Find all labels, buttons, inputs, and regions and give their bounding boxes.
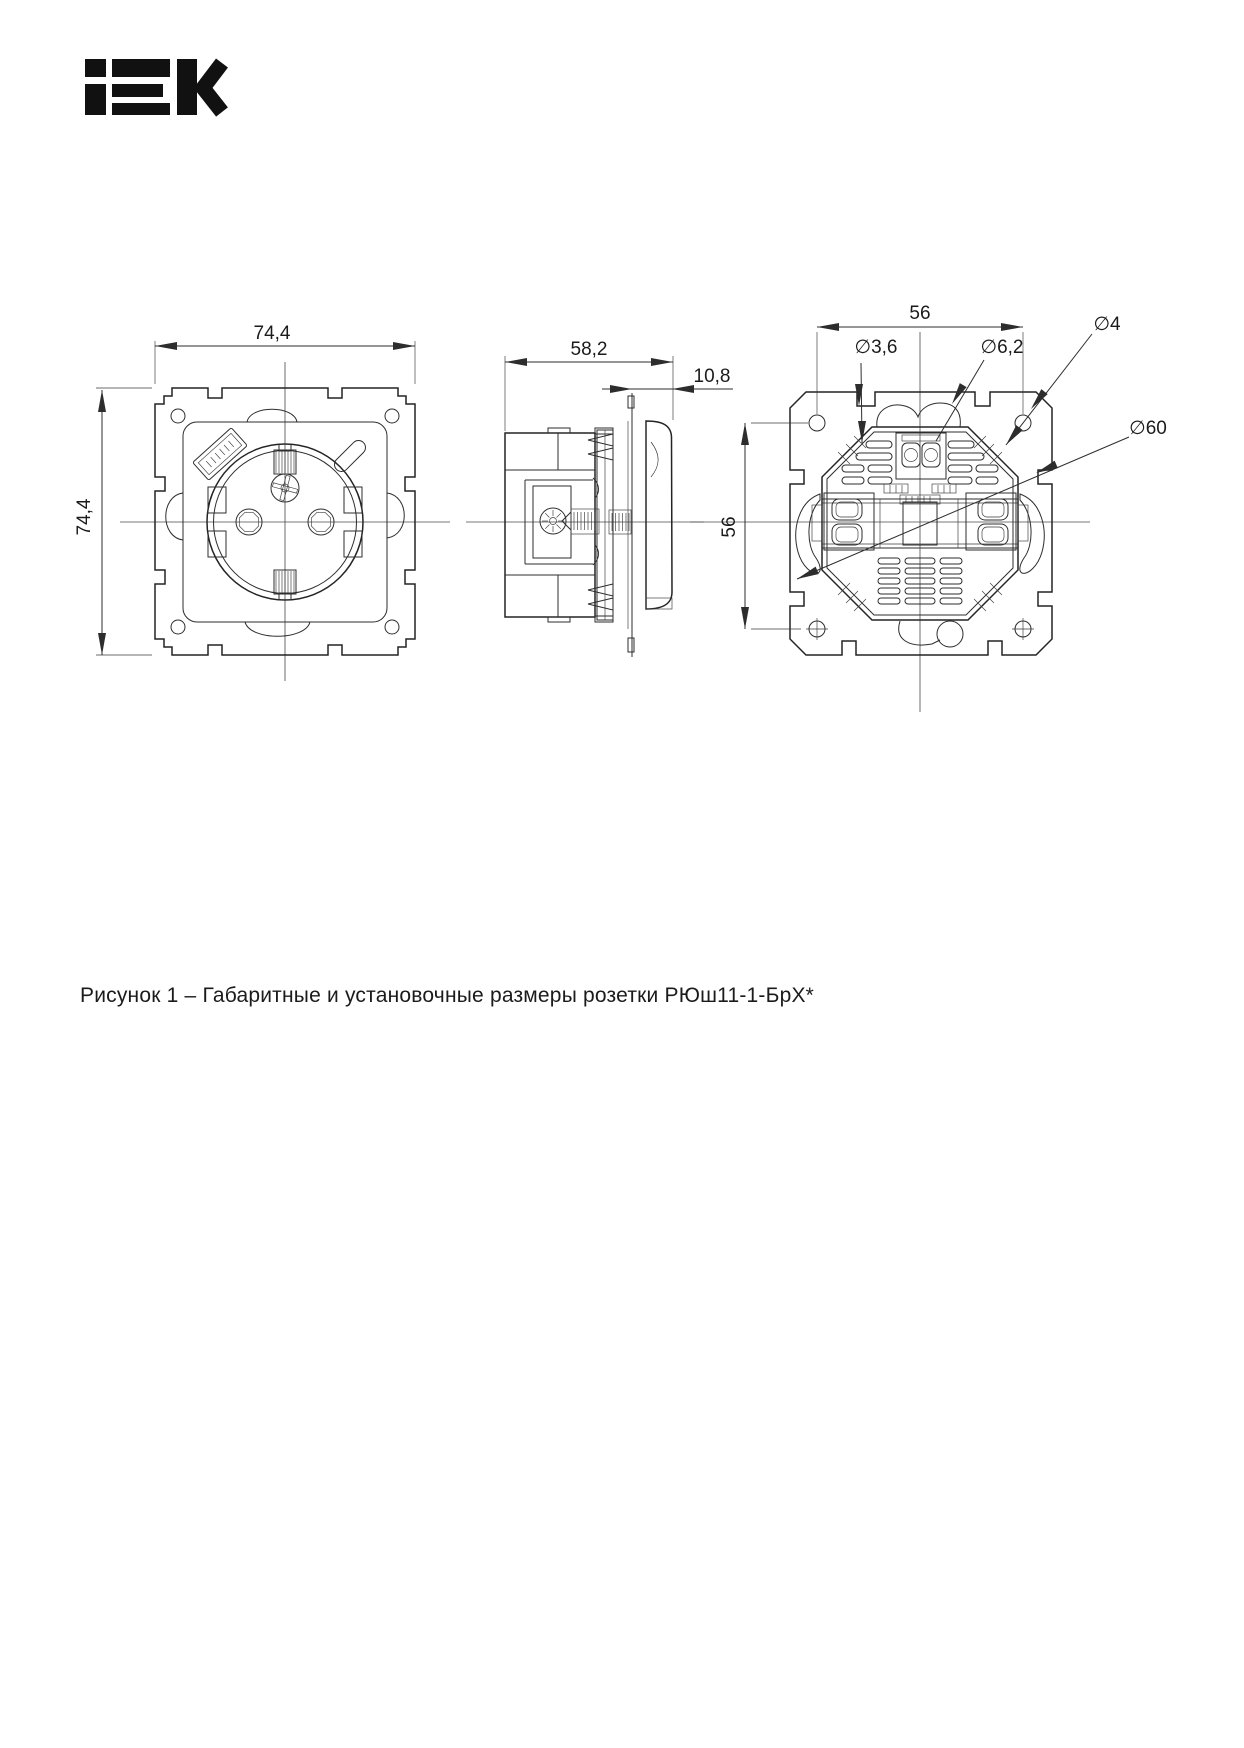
dim-label-dia-claw-hole: ∅3,6 bbox=[855, 337, 898, 358]
leader-dia-terminal-hole: ∅6,2 bbox=[936, 337, 1023, 441]
datasheet-page: 74,4 74,4 bbox=[0, 0, 1244, 1748]
fixing-screw-assembly bbox=[525, 478, 631, 565]
dim-label-mount-vertical: 56 bbox=[719, 516, 740, 537]
corner-hole-bottom-left bbox=[806, 618, 828, 640]
dim-mount-vertical: 56 bbox=[719, 423, 808, 629]
side-view: 58,2 10,8 bbox=[466, 339, 733, 657]
marking-label bbox=[193, 428, 248, 481]
dim-label-front-height: 74,4 bbox=[74, 498, 95, 535]
dim-frame-thickness: 10,8 bbox=[602, 366, 733, 393]
front-view: 74,4 74,4 bbox=[74, 323, 450, 681]
indicator-slot bbox=[332, 438, 369, 475]
faceplate-profile bbox=[646, 421, 672, 609]
dim-label-mount-horizontal: 56 bbox=[909, 303, 930, 324]
dim-label-frame-thickness: 10,8 bbox=[694, 366, 731, 387]
dim-front-height: 74,4 bbox=[74, 388, 152, 655]
corner-hole-bottom-right bbox=[1012, 618, 1034, 640]
technical-drawing: 74,4 74,4 bbox=[0, 0, 1244, 800]
figure-caption: Рисунок 1 – Габаритные и установочные ра… bbox=[80, 984, 814, 1008]
dim-label-dia-body: ∅60 bbox=[1129, 418, 1167, 439]
top-terminal-block bbox=[896, 433, 946, 479]
back-view: 56 56 ∅3,6 ∅6,2 ∅4 bbox=[690, 303, 1167, 712]
dim-label-side-depth: 58,2 bbox=[571, 339, 608, 360]
dim-label-front-width: 74,4 bbox=[254, 323, 291, 344]
dim-label-dia-corner-hole: ∅4 bbox=[1093, 314, 1121, 335]
dim-side-depth: 58,2 bbox=[505, 339, 673, 431]
dim-label-dia-terminal-hole: ∅6,2 bbox=[981, 337, 1024, 358]
